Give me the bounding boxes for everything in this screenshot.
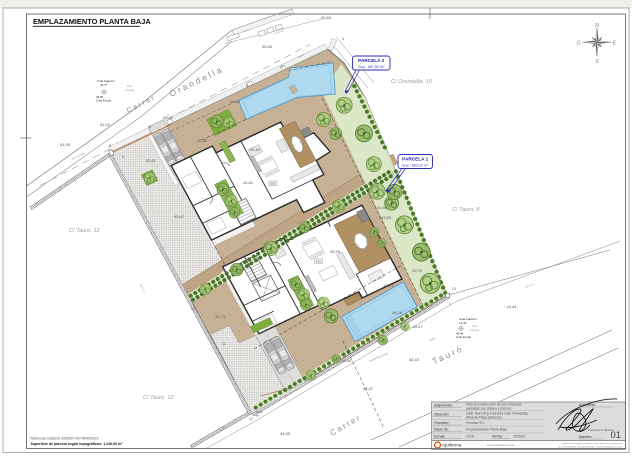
- svg-text:E03: E03: [316, 259, 321, 263]
- svg-text:E03: E03: [271, 182, 276, 186]
- svg-text:Número:: Número:: [579, 435, 592, 439]
- svg-text:7: 7: [167, 114, 169, 118]
- svg-text:Escala:: Escala:: [434, 435, 446, 439]
- svg-text:41,05: 41,05: [60, 142, 71, 147]
- svg-text:+4,40: +4,40: [459, 321, 467, 325]
- svg-text:43,73: 43,73: [215, 314, 226, 319]
- svg-text:43,53: 43,53: [381, 215, 392, 220]
- svg-text:8: 8: [149, 125, 151, 129]
- svg-text:42,35: 42,35: [197, 138, 208, 143]
- svg-text:40,84: 40,84: [321, 15, 332, 20]
- svg-text:Adquiriente:: Adquiriente:: [433, 404, 453, 408]
- svg-text:Sup.: 657,50 m²: Sup.: 657,50 m²: [358, 65, 385, 69]
- svg-text:42,47: 42,47: [174, 214, 185, 219]
- svg-text:40,82: 40,82: [230, 99, 241, 104]
- svg-text:C/ Tauro, 12: C/ Tauro, 12: [69, 228, 100, 234]
- svg-text:44,47: 44,47: [363, 386, 374, 391]
- svg-text:2: 2: [400, 184, 402, 188]
- svg-text:42,61: 42,61: [146, 158, 157, 163]
- svg-text:Promotor:: Promotor:: [434, 421, 449, 425]
- svg-text:Alicante Playa (Alicante).: Alicante Playa (Alicante).: [466, 416, 503, 420]
- svg-text:9: 9: [122, 155, 124, 159]
- svg-text:C/ Tauro, 8: C/ Tauro, 8: [452, 207, 480, 213]
- svg-text:13: 13: [452, 287, 456, 291]
- svg-text:44,44: 44,44: [409, 357, 420, 362]
- svg-text:41,02: 41,02: [100, 122, 111, 127]
- svg-text:PARCELA 2: PARCELA 2: [358, 58, 384, 63]
- svg-text:Superficie de parcela según to: Superficie de parcela según topográficos…: [31, 442, 124, 446]
- svg-text:EMPLAZAMIENTO PLANTA BAJA: EMPLAZAMIENTO PLANTA BAJA: [33, 17, 151, 26]
- svg-text:C/ Orendella, 10: C/ Orendella, 10: [391, 79, 433, 85]
- svg-text:Reg: Reg: [127, 84, 132, 88]
- svg-text:6: 6: [246, 84, 248, 88]
- svg-text:44,55: 44,55: [280, 431, 291, 436]
- svg-text:4: 4: [342, 37, 344, 41]
- svg-text:40,77: 40,77: [100, 83, 108, 87]
- svg-text:Situación:: Situación:: [434, 413, 449, 417]
- svg-text:42,62: 42,62: [243, 180, 254, 185]
- svg-text:N: N: [595, 23, 599, 29]
- svg-text:S: S: [595, 59, 599, 65]
- svg-text:gabinete de estudios y proyect: gabinete de estudios y proyectos de arqu…: [562, 442, 622, 445]
- svg-text:E: E: [613, 40, 617, 46]
- svg-text:- 44,47: - 44,47: [410, 324, 423, 329]
- svg-text:Plano de:: Plano de:: [434, 428, 449, 432]
- svg-text:43,46: 43,46: [377, 205, 388, 210]
- svg-text:42,44: 42,44: [250, 147, 261, 152]
- svg-text:Fernmur S.L.: Fernmur S.L.: [466, 421, 485, 425]
- svg-text:Fecha:: Fecha:: [492, 435, 503, 439]
- svg-text:1/100: 1/100: [466, 435, 474, 439]
- svg-text:Arqueta: Arqueta: [470, 328, 480, 332]
- svg-text:- 44,44: - 44,44: [504, 304, 517, 309]
- svg-text:Arqueta: Arqueta: [125, 88, 135, 92]
- svg-text:01: 01: [611, 430, 622, 441]
- svg-text:10: 10: [191, 307, 195, 311]
- svg-text:pareadas con sótano y piscina.: pareadas con sótano y piscina.: [466, 407, 512, 411]
- svg-text:43,79: 43,79: [412, 268, 423, 273]
- svg-text:11: 11: [222, 342, 226, 346]
- svg-text:Emplazamiento Planta Baja: Emplazamiento Planta Baja: [466, 428, 507, 432]
- svg-text:O: O: [576, 40, 580, 46]
- svg-text:43,71: 43,71: [384, 283, 395, 288]
- svg-text:Sup.: 683,10 m²: Sup.: 683,10 m²: [402, 163, 429, 167]
- svg-text:1: 1: [392, 172, 394, 176]
- svg-text:1: 1: [449, 302, 451, 306]
- svg-text:Referencia Catastral: 6329307Y: Referencia Catastral: 6329307YH0792N0001…: [31, 437, 99, 441]
- svg-text:8: 8: [109, 144, 111, 148]
- svg-text:PARCELA 1: PARCELA 1: [402, 157, 428, 162]
- svg-text:rquiforma: rquiforma: [442, 443, 462, 448]
- svg-text:- 44,46: - 44,46: [339, 358, 352, 363]
- svg-text:43,45: 43,45: [330, 249, 341, 254]
- svg-text:12: 12: [249, 417, 253, 421]
- svg-text:02/2003: 02/2003: [513, 435, 525, 439]
- svg-text:44,16: 44,16: [392, 310, 403, 315]
- svg-text:40,83: 40,83: [262, 44, 273, 49]
- svg-text:Cota Fondo: Cota Fondo: [96, 99, 111, 103]
- svg-text:Poste: Poste: [256, 410, 263, 414]
- svg-text:www.arquiforma.com: www.arquiforma.com: [487, 443, 516, 447]
- svg-text:5: 5: [281, 65, 283, 69]
- svg-text:Reg: Reg: [472, 324, 477, 328]
- svg-text:C/ Tauro, 12: C/ Tauro, 12: [143, 395, 174, 401]
- svg-text:Cota Fondo: Cota Fondo: [456, 335, 471, 339]
